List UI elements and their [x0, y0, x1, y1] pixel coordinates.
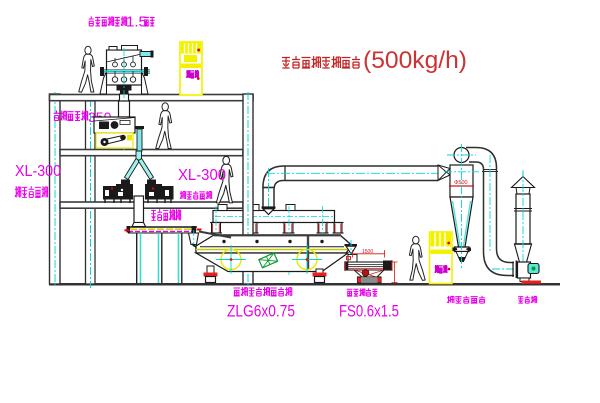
svg-text:ZLG6x0.75: ZLG6x0.75 [227, 303, 295, 321]
svg-text:(500kg/h): (500kg/h) [363, 47, 467, 74]
svg-text:FS0.6x1.5: FS0.6x1.5 [339, 303, 399, 321]
svg-text:1500: 1500 [362, 249, 373, 255]
svg-text:1.5: 1.5 [126, 14, 147, 31]
svg-text:XL-300: XL-300 [178, 167, 226, 184]
svg-text:XL-300: XL-300 [15, 163, 61, 180]
svg-text:Φ500: Φ500 [454, 180, 468, 186]
